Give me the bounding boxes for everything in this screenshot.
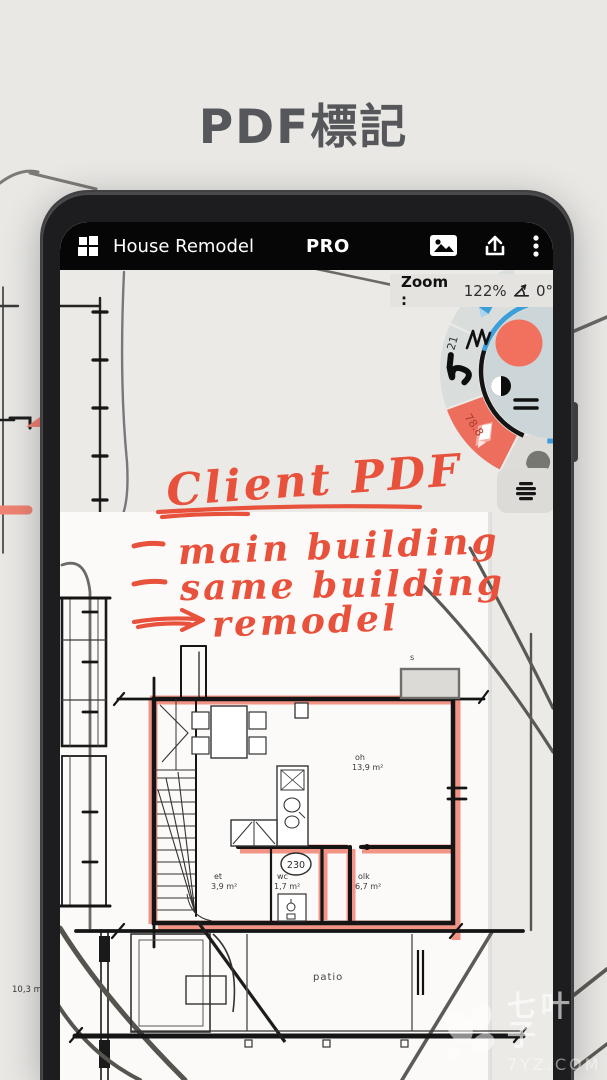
angle-icon xyxy=(514,283,529,298)
page-title: PDF標記 xyxy=(0,88,607,157)
angle-value: 0° xyxy=(536,282,553,300)
background-area-label: 10,3 m² xyxy=(12,985,45,995)
sauna-label: s xyxy=(410,653,414,662)
annotation-item-3: remodel xyxy=(211,597,399,645)
watermark-site: 7YZ.COM xyxy=(507,1055,607,1074)
watermark-name: 七叶子 xyxy=(507,992,607,1050)
leaf-logo-icon xyxy=(438,997,501,1069)
bullet-dash-2 xyxy=(134,581,165,584)
phone-mockup: s xyxy=(42,192,572,1080)
document-title: House Remodel xyxy=(113,236,254,257)
site-watermark: 七叶子 7YZ.COM xyxy=(438,992,607,1074)
wall-junction-dot xyxy=(364,844,370,850)
pro-badge: PRO xyxy=(306,236,350,257)
patio-label: patio xyxy=(313,972,343,983)
zoom-angle-indicator: Zoom : 122% 0° xyxy=(390,274,553,307)
current-color-swatch[interactable] xyxy=(496,320,543,367)
zoom-value: 122% xyxy=(464,282,507,300)
chimney xyxy=(401,669,459,698)
drawing-canvas[interactable]: s xyxy=(60,222,553,1080)
bullet-dash-1 xyxy=(134,543,163,546)
grid-menu-icon[interactable] xyxy=(76,234,100,258)
app-screen: s xyxy=(60,222,553,1080)
blue-arc-small xyxy=(547,440,553,442)
zoom-label: Zoom : xyxy=(401,273,457,309)
app-toolbar: House Remodel PRO xyxy=(60,222,553,270)
overflow-menu-icon[interactable] xyxy=(533,234,539,258)
door-width-label: 230 xyxy=(287,860,305,871)
share-icon[interactable] xyxy=(482,234,508,258)
contrast-icon[interactable] xyxy=(491,376,511,396)
layers-icon xyxy=(512,481,540,501)
layers-button[interactable] xyxy=(497,468,553,513)
image-icon[interactable] xyxy=(430,235,457,257)
